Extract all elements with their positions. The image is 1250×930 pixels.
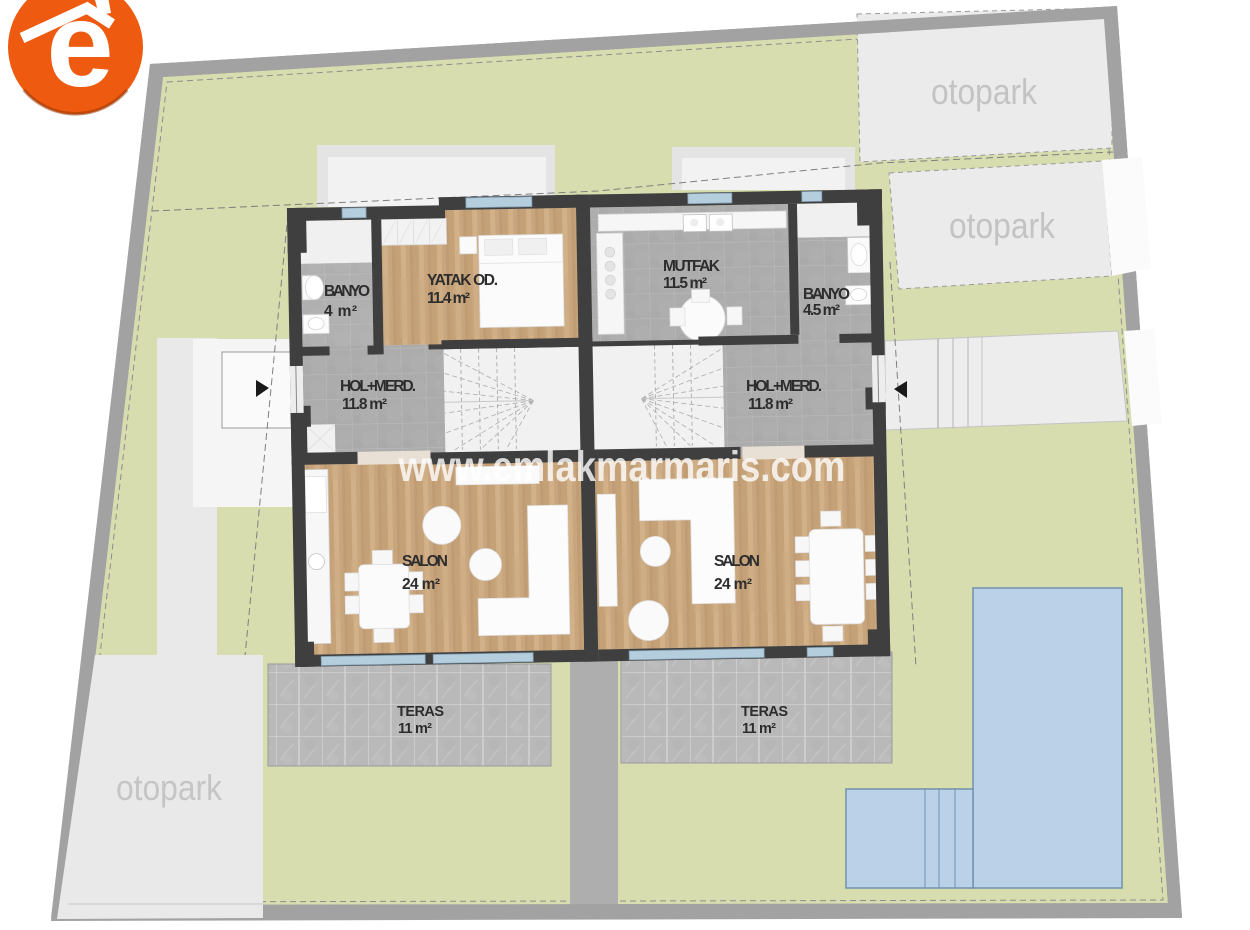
svg-text:TERAS: TERAS <box>741 704 788 720</box>
svg-text:11 m²: 11 m² <box>742 721 776 737</box>
svg-text:SALON: SALON <box>714 553 760 570</box>
svg-text:YATAK OD.: YATAK OD. <box>427 272 498 289</box>
svg-text:24 m²: 24 m² <box>402 576 440 593</box>
svg-text:www.emlakmarmaris.com: www.emlakmarmaris.com <box>398 443 846 491</box>
svg-text:11.5 m²: 11.5 m² <box>663 275 707 292</box>
svg-text:11.4 m²: 11.4 m² <box>427 290 470 307</box>
svg-text:11.8 m²: 11.8 m² <box>342 396 387 413</box>
svg-text:otopark: otopark <box>116 767 223 808</box>
svg-text:SALON: SALON <box>402 553 448 570</box>
svg-text:4.5 m²: 4.5 m² <box>803 302 840 319</box>
svg-text:MUTFAK: MUTFAK <box>663 258 721 275</box>
svg-text:BANYO: BANYO <box>324 283 370 300</box>
svg-text:HOL+MERD.: HOL+MERD. <box>746 378 822 395</box>
svg-text:24 m²: 24 m² <box>714 576 752 593</box>
svg-text:4 m²: 4 m² <box>324 303 357 320</box>
svg-text:otopark: otopark <box>931 71 1038 112</box>
svg-text:BANYO: BANYO <box>803 286 850 303</box>
svg-text:11.8 m²: 11.8 m² <box>748 396 793 413</box>
svg-text:otopark: otopark <box>949 205 1056 246</box>
svg-text:HOL+MERD.: HOL+MERD. <box>340 378 416 395</box>
svg-text:11 m²: 11 m² <box>398 721 432 737</box>
svg-text:e: e <box>46 0 113 112</box>
svg-text:TERAS: TERAS <box>397 704 444 720</box>
